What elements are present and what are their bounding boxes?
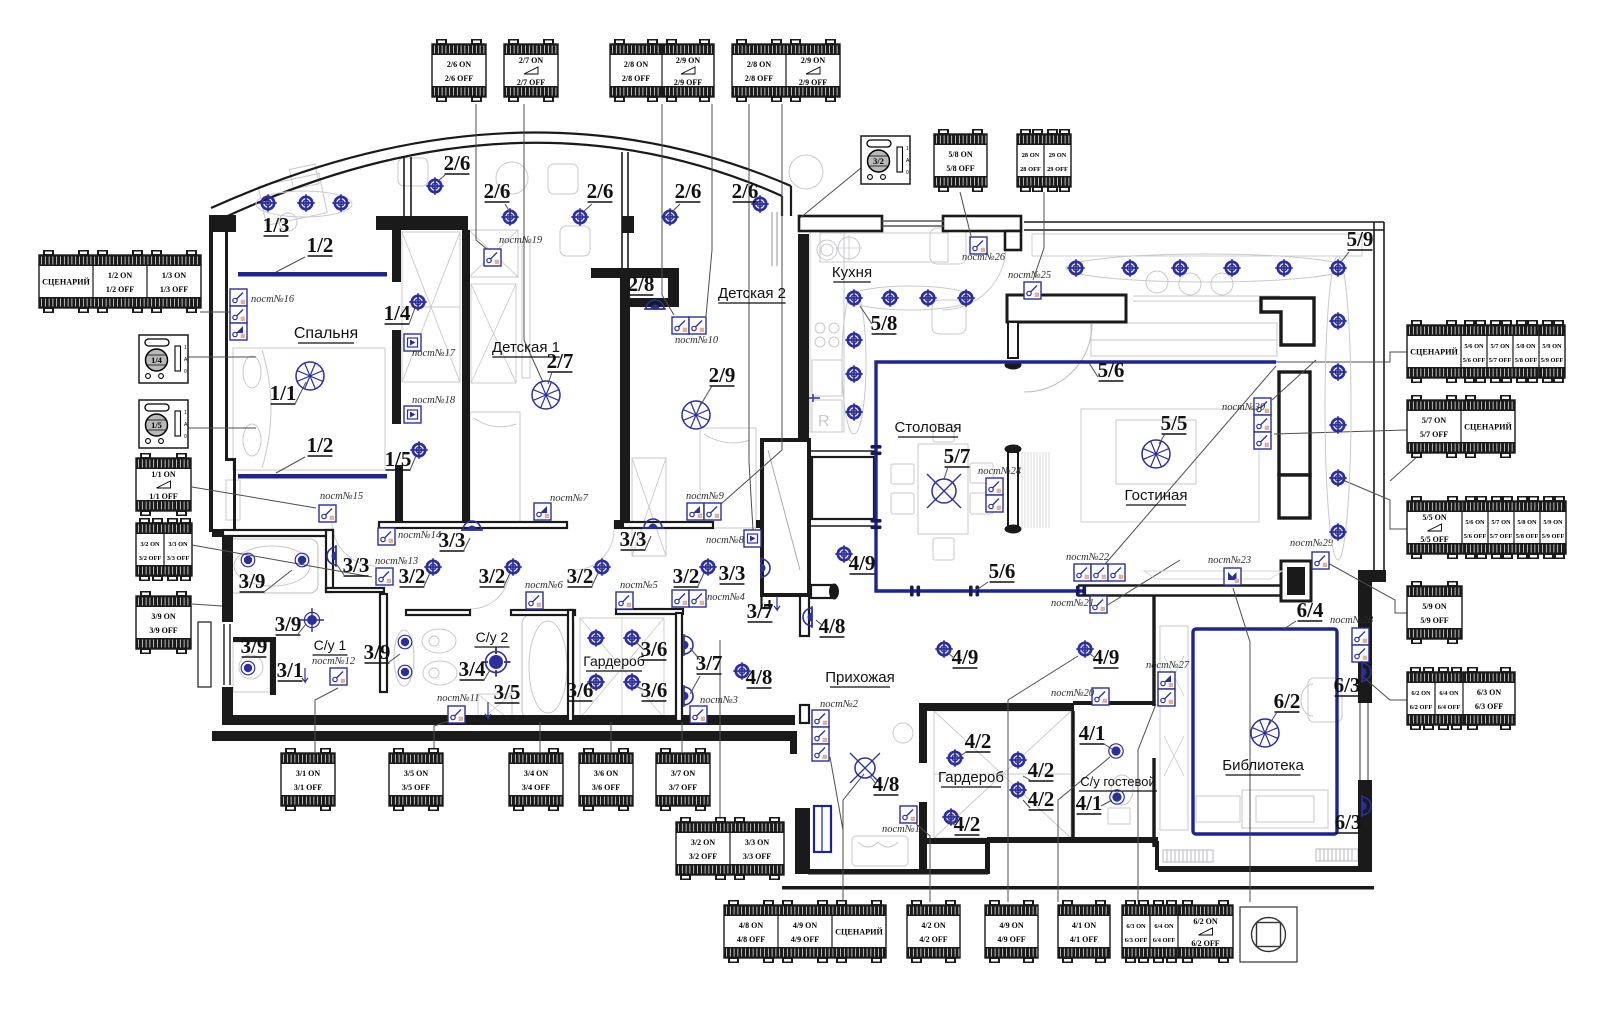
svg-text:2/9: 2/9 <box>709 363 736 387</box>
svg-text:пост№23: пост№23 <box>1208 555 1251 566</box>
svg-text:1/1: 1/1 <box>270 381 297 405</box>
svg-text:пост№25: пост№25 <box>1008 270 1051 281</box>
svg-text:пост№24: пост№24 <box>978 466 1022 477</box>
svg-text:6/2 ON: 6/2 ON <box>1193 917 1217 926</box>
svg-text:5/9 ON: 5/9 ON <box>1422 602 1446 611</box>
svg-text:Гардероб: Гардероб <box>938 769 1004 786</box>
svg-text:пост№10: пост№10 <box>675 335 719 346</box>
svg-text:5/9: 5/9 <box>1347 227 1374 251</box>
svg-text:пост№6: пост№6 <box>525 580 564 591</box>
svg-text:3/4 OFF: 3/4 OFF <box>522 783 550 792</box>
svg-text:5/8 ON: 5/8 ON <box>948 150 972 159</box>
svg-text:3/2: 3/2 <box>873 156 884 166</box>
svg-text:1/3 OFF: 1/3 OFF <box>160 285 188 294</box>
svg-text:3/3 ON: 3/3 ON <box>745 838 769 847</box>
svg-text:5/6 OFF: 5/6 OFF <box>1464 533 1487 540</box>
svg-text:2/8 OFF: 2/8 OFF <box>745 74 773 83</box>
svg-text:пост№27: пост№27 <box>1146 660 1190 671</box>
svg-text:4/2: 4/2 <box>1028 787 1055 811</box>
svg-text:пост№30: пост№30 <box>1222 402 1266 413</box>
svg-text:1/3 ON: 1/3 ON <box>162 271 186 280</box>
svg-text:5/8 ON: 5/8 ON <box>1516 343 1536 350</box>
svg-text:5/6 ON: 5/6 ON <box>1464 343 1484 350</box>
svg-text:29 ON: 29 ON <box>1049 152 1067 159</box>
svg-text:5/6 ON: 5/6 ON <box>1465 519 1485 526</box>
svg-text:3/9: 3/9 <box>275 612 302 636</box>
svg-text:1/2: 1/2 <box>307 233 334 257</box>
svg-text:5/5 OFF: 5/5 OFF <box>1420 535 1448 544</box>
svg-text:4/8 OFF: 4/8 OFF <box>737 935 765 944</box>
svg-text:4/9 OFF: 4/9 OFF <box>997 935 1025 944</box>
svg-text:пост№4: пост№4 <box>707 592 746 603</box>
svg-text:0: 0 <box>184 434 187 440</box>
svg-text:4/9 ON: 4/9 ON <box>999 921 1023 930</box>
svg-text:6/3: 6/3 <box>1334 673 1361 697</box>
svg-text:6/2 OFF: 6/2 OFF <box>1191 939 1219 948</box>
svg-text:пост№14: пост№14 <box>398 530 442 541</box>
svg-text:3/1: 3/1 <box>277 658 304 682</box>
svg-text:2/8 ON: 2/8 ON <box>747 60 771 69</box>
svg-text:1/2 ON: 1/2 ON <box>108 271 132 280</box>
svg-text:4/2: 4/2 <box>965 729 992 753</box>
svg-text:3/5 ON: 3/5 ON <box>404 769 428 778</box>
svg-text:1/3: 1/3 <box>263 213 290 237</box>
svg-text:1/2: 1/2 <box>307 433 334 457</box>
svg-text:4/9 OFF: 4/9 OFF <box>791 935 819 944</box>
svg-text:пост№17: пост№17 <box>412 348 456 359</box>
svg-text:2/9 OFF: 2/9 OFF <box>674 78 702 87</box>
svg-text:4/2: 4/2 <box>954 812 981 836</box>
svg-text:5/7 ON: 5/7 ON <box>1490 343 1510 350</box>
svg-text:5/8 OFF: 5/8 OFF <box>1515 357 1538 364</box>
svg-text:5/7 ON: 5/7 ON <box>1491 519 1511 526</box>
svg-text:3/1 OFF: 3/1 OFF <box>294 783 322 792</box>
svg-text:6/3: 6/3 <box>1335 810 1362 834</box>
svg-text:3/9 ON: 3/9 ON <box>151 612 175 621</box>
svg-text:3/3: 3/3 <box>439 528 466 552</box>
svg-text:5/7 OFF: 5/7 OFF <box>1420 430 1448 439</box>
svg-text:5/8 OFF: 5/8 OFF <box>1516 533 1539 540</box>
svg-text:пост№28: пост№28 <box>1330 615 1374 626</box>
svg-text:3/6: 3/6 <box>641 678 668 702</box>
svg-text:3/5: 3/5 <box>494 680 521 704</box>
svg-text:2/8 ON: 2/8 ON <box>624 60 648 69</box>
svg-text:3/5 OFF: 3/5 OFF <box>402 783 430 792</box>
svg-text:1/5: 1/5 <box>151 420 162 430</box>
svg-text:4/1: 4/1 <box>1079 721 1106 745</box>
svg-text:5/5: 5/5 <box>1161 411 1188 435</box>
svg-text:1/1 ON: 1/1 ON <box>151 470 175 479</box>
svg-text:5/7 OFF: 5/7 OFF <box>1489 357 1512 364</box>
svg-text:5/7 OFF: 5/7 OFF <box>1490 533 1513 540</box>
svg-text:пост№7: пост№7 <box>550 493 589 504</box>
svg-text:пост№20: пост№20 <box>1051 688 1095 699</box>
svg-text:1/1 OFF: 1/1 OFF <box>149 492 177 501</box>
svg-text:3/3: 3/3 <box>620 527 647 551</box>
svg-text:пост№15: пост№15 <box>320 491 363 502</box>
svg-text:6/4 ON: 6/4 ON <box>1154 923 1174 930</box>
svg-text:6/4: 6/4 <box>1297 598 1324 622</box>
svg-text:5/9 ON: 5/9 ON <box>1542 343 1562 350</box>
svg-text:6/3 OFF: 6/3 OFF <box>1475 702 1503 711</box>
svg-text:0: 0 <box>184 369 187 375</box>
svg-text:пост№29: пост№29 <box>1290 538 1334 549</box>
svg-text:2/6: 2/6 <box>675 179 702 203</box>
svg-text:СЦЕНАРИЙ: СЦЕНАРИЙ <box>1410 348 1458 357</box>
svg-text:5/8: 5/8 <box>871 311 898 335</box>
svg-text:4/2: 4/2 <box>1028 758 1055 782</box>
svg-text:2/9 OFF: 2/9 OFF <box>799 78 827 87</box>
svg-text:3/2 ON: 3/2 ON <box>140 541 160 548</box>
svg-text:1/4: 1/4 <box>151 355 163 365</box>
svg-text:3/2 ON: 3/2 ON <box>691 838 715 847</box>
svg-text:6/3 ON: 6/3 ON <box>1126 923 1146 930</box>
svg-text:2/8: 2/8 <box>628 272 655 296</box>
svg-text:пост№12: пост№12 <box>312 656 356 667</box>
svg-text:4/9 ON: 4/9 ON <box>793 921 817 930</box>
svg-text:3/7 ON: 3/7 ON <box>671 769 695 778</box>
svg-text:6/4 OFF: 6/4 OFF <box>1438 704 1461 711</box>
svg-text:1: 1 <box>184 410 187 416</box>
svg-text:3/2: 3/2 <box>673 564 700 588</box>
svg-text:4/8 ON: 4/8 ON <box>739 921 763 930</box>
svg-text:2/9 ON: 2/9 ON <box>676 56 700 65</box>
svg-text:Детская 2: Детская 2 <box>718 285 786 302</box>
svg-text:3/4: 3/4 <box>459 657 486 681</box>
svg-text:6/4 OFF: 6/4 OFF <box>1153 937 1176 944</box>
svg-text:3/3: 3/3 <box>343 553 370 577</box>
svg-text:3/2: 3/2 <box>479 564 506 588</box>
svg-text:6/2 OFF: 6/2 OFF <box>1410 704 1433 711</box>
svg-text:5/6: 5/6 <box>1098 358 1125 382</box>
svg-text:28 OFF: 28 OFF <box>1020 166 1041 173</box>
svg-text:3/7: 3/7 <box>747 599 774 623</box>
svg-text:4/2 ON: 4/2 ON <box>921 921 945 930</box>
svg-text:3/6: 3/6 <box>567 678 594 702</box>
svg-text:3/1 ON: 3/1 ON <box>296 769 320 778</box>
svg-text:3/6: 3/6 <box>641 637 668 661</box>
svg-text:3/9: 3/9 <box>364 640 391 664</box>
svg-text:4/1 OFF: 4/1 OFF <box>1070 935 1098 944</box>
svg-text:4/8: 4/8 <box>873 772 900 796</box>
svg-text:Спальня: Спальня <box>294 325 358 342</box>
svg-text:2/8 OFF: 2/8 OFF <box>622 74 650 83</box>
svg-text:пост№2: пост№2 <box>820 699 859 710</box>
svg-text:Библиотека: Библиотека <box>1222 757 1304 774</box>
svg-text:5/7 ON: 5/7 ON <box>1422 416 1446 425</box>
svg-text:2/6: 2/6 <box>587 179 614 203</box>
svg-text:1/2 OFF: 1/2 OFF <box>106 285 134 294</box>
svg-text:пост№18: пост№18 <box>412 395 456 406</box>
svg-text:С/у 2: С/у 2 <box>476 629 509 645</box>
svg-text:3/9: 3/9 <box>241 634 268 658</box>
svg-text:2/6 OFF: 2/6 OFF <box>445 74 473 83</box>
svg-text:пост№9: пост№9 <box>686 491 725 502</box>
svg-text:Гардероб: Гардероб <box>583 653 645 669</box>
svg-text:3/7: 3/7 <box>696 651 723 675</box>
svg-text:3/4 ON: 3/4 ON <box>524 769 548 778</box>
svg-text:5/9 ON: 5/9 ON <box>1543 519 1563 526</box>
svg-text:3/6 OFF: 3/6 OFF <box>592 783 620 792</box>
svg-text:29 OFF: 29 OFF <box>1047 166 1068 173</box>
svg-text:5/8 OFF: 5/8 OFF <box>946 164 974 173</box>
svg-text:1: 1 <box>184 345 187 351</box>
svg-text:пост№3: пост№3 <box>700 695 738 706</box>
svg-text:3/7 OFF: 3/7 OFF <box>669 783 697 792</box>
svg-text:5/9 OFF: 5/9 OFF <box>1542 533 1565 540</box>
svg-text:R: R <box>818 413 830 430</box>
svg-text:4/9: 4/9 <box>952 645 979 669</box>
svg-text:Кухня: Кухня <box>832 264 872 281</box>
svg-text:3/6 ON: 3/6 ON <box>594 769 618 778</box>
svg-text:5/5 ON: 5/5 ON <box>1422 513 1446 522</box>
svg-text:пост№21: пост№21 <box>1051 598 1094 609</box>
svg-text:28 ON: 28 ON <box>1022 152 1040 159</box>
svg-text:4/9: 4/9 <box>849 551 876 575</box>
svg-text:СЦЕНАРИЙ: СЦЕНАРИЙ <box>835 928 883 937</box>
svg-text:3/3 OFF: 3/3 OFF <box>167 555 190 562</box>
svg-text:5/8 ON: 5/8 ON <box>1517 519 1537 526</box>
svg-text:6/2 ON: 6/2 ON <box>1411 690 1431 697</box>
svg-text:пост№26: пост№26 <box>962 252 1006 263</box>
svg-text:5/9 OFF: 5/9 OFF <box>1420 616 1448 625</box>
svg-text:1/5: 1/5 <box>385 447 412 471</box>
svg-text:2/6: 2/6 <box>484 179 511 203</box>
svg-text:2/6 ON: 2/6 ON <box>447 60 471 69</box>
svg-text:С/у гостевой: С/у гостевой <box>1080 774 1156 789</box>
svg-text:3/3 OFF: 3/3 OFF <box>743 852 771 861</box>
svg-text:Прихожая: Прихожая <box>825 669 895 686</box>
svg-text:6/2: 6/2 <box>1274 689 1301 713</box>
svg-text:СЦЕНАРИЙ: СЦЕНАРИЙ <box>1464 423 1512 432</box>
svg-text:4/8: 4/8 <box>746 665 773 689</box>
svg-text:4/1: 4/1 <box>1076 791 1103 815</box>
svg-text:пост№22: пост№22 <box>1066 552 1110 563</box>
svg-text:3/9: 3/9 <box>239 569 266 593</box>
svg-text:2/9 ON: 2/9 ON <box>801 56 825 65</box>
svg-text:2/6: 2/6 <box>444 151 471 175</box>
svg-text:6/3 OFF: 6/3 OFF <box>1125 937 1148 944</box>
svg-text:пост№11: пост№11 <box>437 693 479 704</box>
svg-text:4/9: 4/9 <box>1093 645 1120 669</box>
svg-text:СЦЕНАРИЙ: СЦЕНАРИЙ <box>42 278 90 287</box>
svg-text:2/7 ON: 2/7 ON <box>519 56 543 65</box>
svg-text:3/2: 3/2 <box>399 564 426 588</box>
svg-text:пост№19: пост№19 <box>499 235 543 246</box>
svg-text:3/2 OFF: 3/2 OFF <box>139 555 162 562</box>
svg-text:4/1 ON: 4/1 ON <box>1072 921 1096 930</box>
svg-text:пост№1: пост№1 <box>882 824 920 835</box>
svg-text:3/9 OFF: 3/9 OFF <box>149 626 177 635</box>
svg-text:5/9 OFF: 5/9 OFF <box>1541 357 1564 364</box>
svg-text:4/2 OFF: 4/2 OFF <box>919 935 947 944</box>
svg-text:1/4: 1/4 <box>384 301 411 325</box>
svg-text:Гостиная: Гостиная <box>1125 487 1188 504</box>
svg-text:пост№8: пост№8 <box>706 535 745 546</box>
svg-text:2/7 OFF: 2/7 OFF <box>517 78 545 87</box>
svg-text:3/3: 3/3 <box>719 561 746 585</box>
svg-text:3/2 OFF: 3/2 OFF <box>689 852 717 861</box>
svg-text:0: 0 <box>906 170 909 176</box>
svg-text:С/у 1: С/у 1 <box>314 637 347 653</box>
svg-text:пост№5: пост№5 <box>620 580 658 591</box>
svg-text:5/6: 5/6 <box>989 559 1016 583</box>
svg-text:1: 1 <box>906 146 909 152</box>
svg-text:6/4 ON: 6/4 ON <box>1439 690 1459 697</box>
svg-text:2/7: 2/7 <box>547 349 574 373</box>
svg-text:3/3 ON: 3/3 ON <box>168 541 188 548</box>
svg-text:6/3 ON: 6/3 ON <box>1477 688 1501 697</box>
svg-text:5/6 OFF: 5/6 OFF <box>1463 357 1486 364</box>
svg-text:5/7: 5/7 <box>944 444 971 468</box>
svg-text:пост№16: пост№16 <box>251 294 295 305</box>
svg-text:3/2: 3/2 <box>567 564 594 588</box>
svg-text:Столовая: Столовая <box>894 419 961 436</box>
svg-text:2/6: 2/6 <box>732 179 759 203</box>
